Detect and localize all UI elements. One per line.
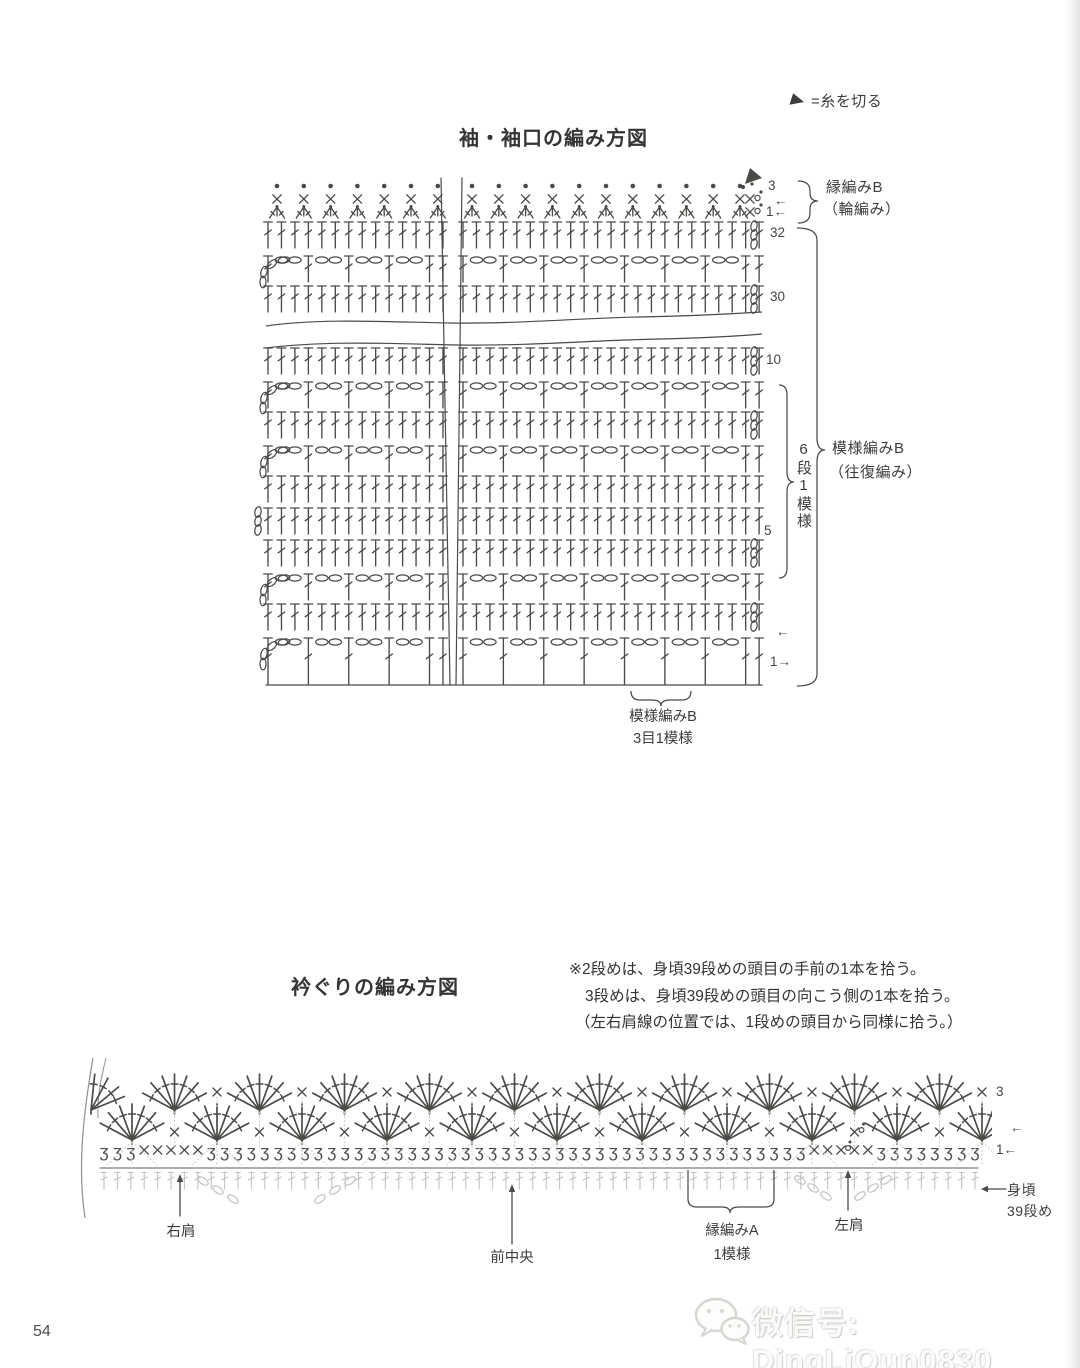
sleeve-bottom-sublabel: 3目1模様: [620, 727, 706, 748]
loop-symbol: ʒ: [662, 1142, 671, 1161]
edge-b-sublabel: （輪編み）: [823, 198, 901, 219]
left-shoulder-arrow: [845, 1170, 851, 1178]
loop-symbol: ʒ: [367, 1142, 376, 1161]
body-row-label: 身頃: [1007, 1180, 1036, 1200]
loop-symbol: ʒ: [488, 1142, 497, 1161]
loop-symbol: ʒ: [903, 1142, 912, 1161]
loop-symbol: ʒ: [542, 1142, 551, 1161]
sleeve-bottom-brace: [631, 691, 691, 706]
repeat-brace: [779, 385, 794, 578]
neck-row-markers: 3←1←: [996, 1084, 1024, 1157]
sleeve-bottom-label: 模様編みB: [620, 705, 706, 726]
neck-loop-row: ʒʒʒʒʒʒʒʒʒʒʒʒʒʒʒʒʒʒʒʒʒʒʒʒʒʒʒʒʒʒʒʒʒʒʒʒʒʒʒʒ…: [99, 1141, 979, 1162]
loop-symbol: ʒ: [582, 1142, 591, 1161]
loop-symbol: ʒ: [515, 1142, 524, 1161]
row-marker: 32: [770, 225, 785, 240]
row-marker: 1←: [766, 204, 787, 219]
pattern-b-sublabel: （往復編み）: [829, 461, 922, 482]
cut-yarn-legend: =糸を切る: [791, 90, 882, 111]
loop-symbol: ʒ: [408, 1142, 417, 1161]
loop-symbol: ʒ: [501, 1142, 510, 1161]
loop-symbol: ʒ: [126, 1142, 135, 1161]
loop-symbol: ʒ: [877, 1142, 886, 1161]
row-marker: ←: [776, 624, 790, 639]
body-row-arrow: [981, 1186, 988, 1192]
loop-symbol: ʒ: [917, 1142, 926, 1161]
loop-symbol: ʒ: [568, 1142, 577, 1161]
loop-symbol: ʒ: [783, 1142, 792, 1161]
row-marker: 1←: [996, 1142, 1017, 1157]
crochet-charts-canvas: 3←1←3230105←1→ʒʒʒʒʒʒʒʒʒʒʒʒʒʒʒʒʒʒʒʒʒʒʒʒʒʒ…: [0, 0, 1080, 1368]
row-marker: 1→: [770, 654, 791, 669]
watermark-text: 微信号: DingLiQun0830: [752, 1298, 1080, 1368]
front-center-arrow: [509, 1184, 515, 1192]
row-marker: 3: [996, 1084, 1004, 1099]
loop-symbol: ʒ: [930, 1142, 939, 1161]
neck-chart-title: 衿ぐりの編み方図: [291, 971, 459, 1000]
note-line: 3段めは、身頃39段めの頭目の向こう側の1本を拾う。: [585, 984, 962, 1011]
front-center-label: 前中央: [481, 1246, 543, 1267]
loop-symbol: ʒ: [220, 1142, 229, 1161]
loop-symbol: ʒ: [649, 1142, 658, 1161]
right-shoulder-arrow: [177, 1174, 183, 1182]
loop-symbol: ʒ: [381, 1142, 390, 1161]
loop-symbol: ʒ: [702, 1142, 711, 1161]
loop-symbol: ʒ: [769, 1142, 778, 1161]
row-marker: ←: [1010, 1120, 1024, 1135]
loop-symbol: ʒ: [421, 1142, 430, 1161]
wechat-icon: [694, 1297, 752, 1345]
loop-symbol: ʒ: [341, 1142, 350, 1161]
loop-symbol: ʒ: [434, 1142, 443, 1161]
sleeve-chart-title: 袖・袖口の編み方図: [459, 122, 648, 151]
note-line: （左右肩線の位置では、1段めの頭目から同様に拾う。）: [575, 1010, 962, 1037]
right-shoulder-label: 右肩: [160, 1220, 202, 1241]
page-number: 54: [33, 1323, 51, 1341]
row-marker: 3: [768, 178, 776, 193]
loop-symbol: ʒ: [689, 1142, 698, 1161]
cut-yarn-mark: [745, 168, 762, 184]
loop-symbol: ʒ: [756, 1142, 765, 1161]
loop-symbol: ʒ: [622, 1142, 631, 1161]
loop-symbol: ʒ: [354, 1142, 363, 1161]
loop-symbol: ʒ: [99, 1142, 108, 1161]
loop-symbol: ʒ: [448, 1142, 457, 1161]
neck-chart-notes: ※2段めは、身頃39段めの頭目の手前の1本を拾う。 3段めは、身頃39段めの頭目…: [569, 957, 962, 1037]
edge-b-label: 縁編みB: [826, 176, 883, 197]
left-shoulder-label: 左肩: [828, 1214, 870, 1235]
loop-symbol: ʒ: [890, 1142, 899, 1161]
loop-symbol: ʒ: [233, 1142, 242, 1161]
loop-symbol: ʒ: [327, 1142, 336, 1161]
row-marker: 30: [770, 289, 785, 304]
cut-yarn-label: =糸を切る: [811, 90, 882, 111]
loop-symbol: ʒ: [676, 1142, 685, 1161]
loop-symbol: ʒ: [274, 1142, 283, 1161]
loop-symbol: ʒ: [314, 1142, 323, 1161]
loop-symbol: ʒ: [796, 1142, 805, 1161]
row-marker: 5: [764, 523, 772, 538]
loop-symbol: ʒ: [944, 1142, 953, 1161]
loop-symbol: ʒ: [743, 1142, 752, 1161]
loop-symbol: ʒ: [528, 1142, 537, 1161]
edge-a-sublabel: 1模様: [691, 1243, 773, 1264]
loop-symbol: ʒ: [113, 1142, 122, 1161]
scanned-page: 3←1←3230105←1→ʒʒʒʒʒʒʒʒʒʒʒʒʒʒʒʒʒʒʒʒʒʒʒʒʒʒ…: [0, 0, 1080, 1368]
loop-symbol: ʒ: [260, 1142, 269, 1161]
sleeve-chart-symbols: [254, 168, 763, 685]
edge-b-brace: [798, 181, 818, 223]
pattern-b-label: 模様編みB: [832, 437, 905, 458]
six-row-repeat-label: 6段1模様: [793, 441, 814, 551]
note-line: ※2段めは、身頃39段めの頭目の手前の1本を拾う。: [569, 957, 962, 984]
page-edge-shadow: [1064, 0, 1080, 1368]
edge-a-label: 縁編みA: [691, 1219, 773, 1240]
loop-symbol: ʒ: [635, 1142, 644, 1161]
loop-symbol: ʒ: [957, 1142, 966, 1161]
body-row-sublabel: 39段め: [1007, 1201, 1053, 1221]
neck-chart-symbols: ʒʒʒʒʒʒʒʒʒʒʒʒʒʒʒʒʒʒʒʒʒʒʒʒʒʒʒʒʒʒʒʒʒʒʒʒʒʒʒʒ…: [81, 1058, 1013, 1218]
loop-symbol: ʒ: [394, 1142, 403, 1161]
loop-symbol: ʒ: [247, 1142, 256, 1161]
cut-yarn-icon: [789, 93, 805, 108]
loop-symbol: ʒ: [609, 1142, 618, 1161]
row-marker: 10: [766, 352, 781, 367]
